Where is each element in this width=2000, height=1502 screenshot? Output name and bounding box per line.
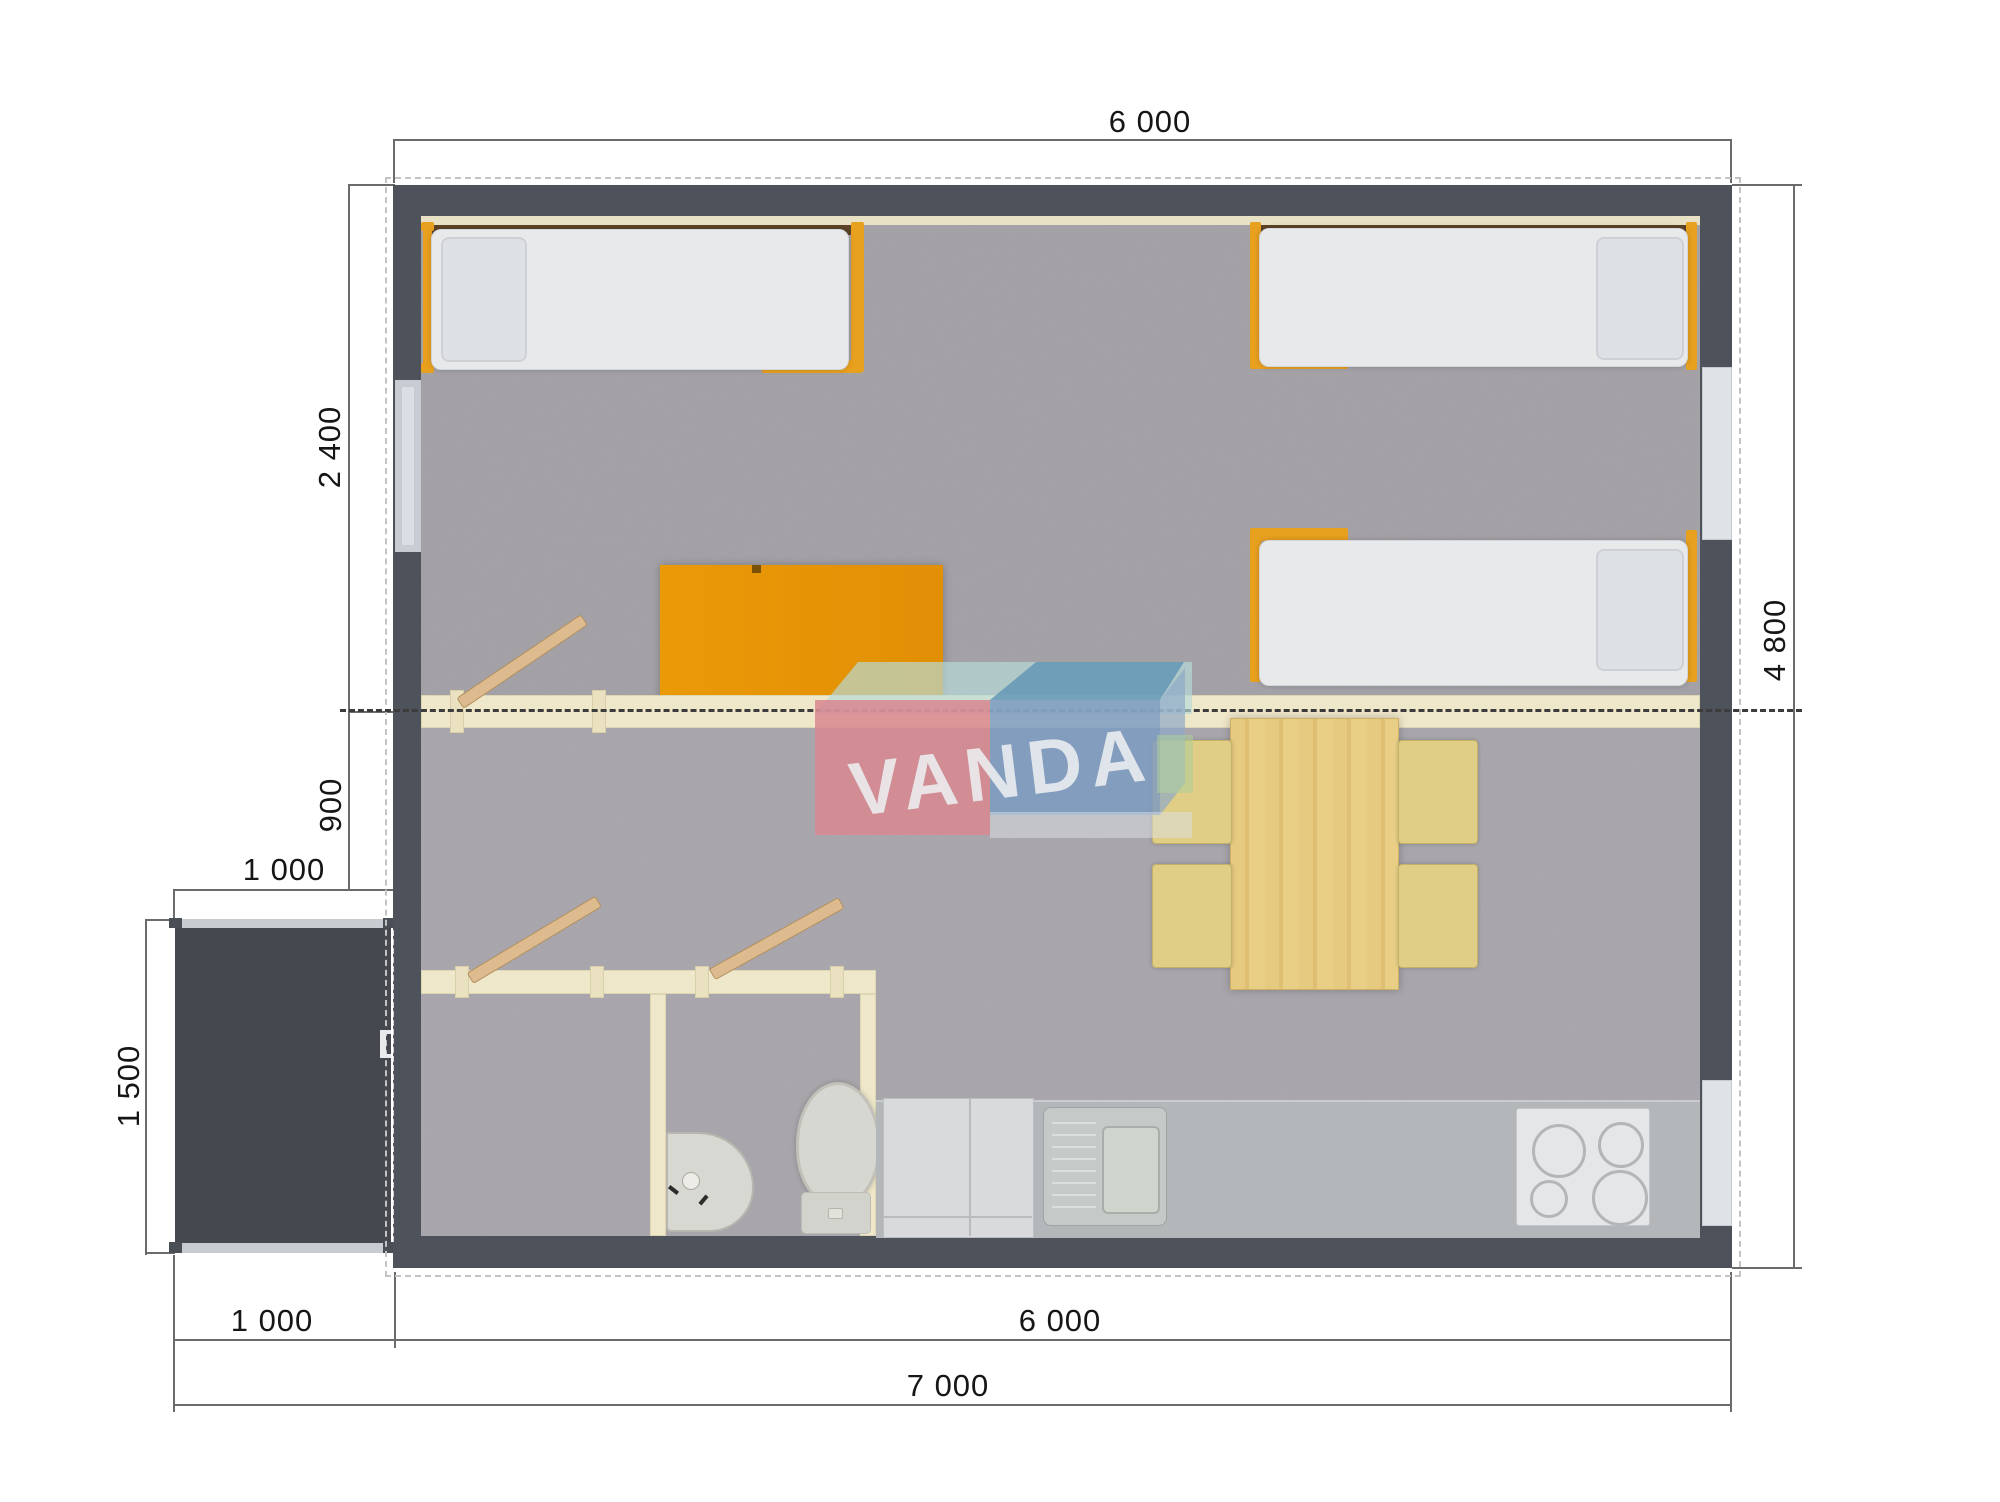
kitchen-sink-basin [1102, 1126, 1160, 1214]
stove-burner [1530, 1180, 1568, 1218]
dim-label-house-depth: 4 800 [1757, 599, 1793, 682]
dim-line-total-width [173, 1404, 1732, 1406]
dim-line-bedroom-depth [348, 184, 350, 712]
house-wall-left [393, 185, 421, 1268]
top-window-sill [421, 216, 1700, 225]
logo-bottom-band [990, 812, 1192, 838]
chair [1152, 864, 1232, 968]
door-jamb [455, 966, 469, 998]
drainboard-ridge [1052, 1146, 1096, 1148]
stove-burner [1592, 1170, 1648, 1226]
bed-frame-rail [851, 222, 864, 372]
dim-label-total-width: 7 000 [907, 1368, 990, 1404]
drainboard-ridge [1052, 1206, 1096, 1208]
door-jamb [830, 966, 844, 998]
dim-label-hall-depth: 900 [313, 778, 349, 833]
drainboard-ridge [1052, 1158, 1096, 1160]
kitchen-appliance-seam [883, 1216, 1032, 1218]
dim-ext-bottom-right [1730, 1272, 1732, 1412]
dim-ext-porch-left [173, 889, 175, 921]
window-left-wall-pane [401, 386, 415, 546]
dim-line-porch-width [173, 889, 395, 891]
dim-label-bottom-porch-width: 1 000 [231, 1303, 314, 1339]
drainboard-ridge [1052, 1182, 1096, 1184]
logo-green-square [1157, 735, 1193, 793]
house-wall-bottom [393, 1236, 1732, 1268]
front-door-handle-nub [380, 1030, 391, 1034]
chair [1398, 740, 1478, 844]
dim-tick-4800-top [1732, 184, 1802, 186]
chair [1398, 864, 1478, 968]
bed-pillow [441, 237, 527, 362]
door-jamb [590, 966, 604, 998]
drainboard-ridge [1052, 1170, 1096, 1172]
window-right-wall-lower [1702, 1080, 1732, 1226]
porch-corner [169, 918, 182, 928]
house-wall-top [393, 185, 1732, 216]
drainboard-ridge [1052, 1194, 1096, 1196]
stove-burner [1532, 1124, 1586, 1178]
dim-label-top-width: 6 000 [1109, 104, 1192, 140]
dim-line-top-width [393, 139, 1732, 141]
drainboard-ridge [1052, 1134, 1096, 1136]
bathroom-sink-faucet [682, 1172, 700, 1190]
dim-label-porch-depth: 1 500 [111, 1045, 147, 1128]
dim-label-bedroom-depth: 2 400 [312, 406, 348, 489]
dim-label-porch-width: 1 000 [243, 852, 326, 888]
front-door-handle-nub [380, 1054, 391, 1058]
floor-plan: 6 000 2 400 900 1 000 1 500 4 800 1 000 … [0, 0, 2000, 1502]
dim-ext-bottom-porchleft [173, 1255, 175, 1412]
dim-label-bottom-house-width: 6 000 [1019, 1303, 1102, 1339]
vanda-watermark: VANDA [800, 648, 1200, 848]
bed-pillow [1596, 549, 1684, 671]
dining-table [1230, 718, 1399, 990]
dim-tick-4800-bottom [1732, 1267, 1802, 1269]
drainboard-ridge [1052, 1122, 1096, 1124]
bed-pillow [1596, 237, 1684, 360]
stove-burner [1598, 1122, 1644, 1168]
porch [175, 928, 391, 1243]
porch-sill-bottom [175, 1243, 391, 1253]
door-jamb [695, 966, 709, 998]
dim-line-bottom-split [173, 1339, 1732, 1341]
dim-ext-bottom-housewall [394, 1272, 396, 1348]
window-right-wall [1702, 367, 1732, 540]
porch-corner [169, 1242, 182, 1253]
bathroom-divider-wall [650, 994, 666, 1236]
porch-sill-top [175, 919, 391, 928]
front-door-dashed-edge [391, 930, 394, 1242]
dim-line-house-depth [1793, 185, 1795, 1268]
wardrobe-handle [752, 565, 761, 573]
toilet-lid [796, 1082, 880, 1206]
toilet-button [828, 1208, 843, 1219]
